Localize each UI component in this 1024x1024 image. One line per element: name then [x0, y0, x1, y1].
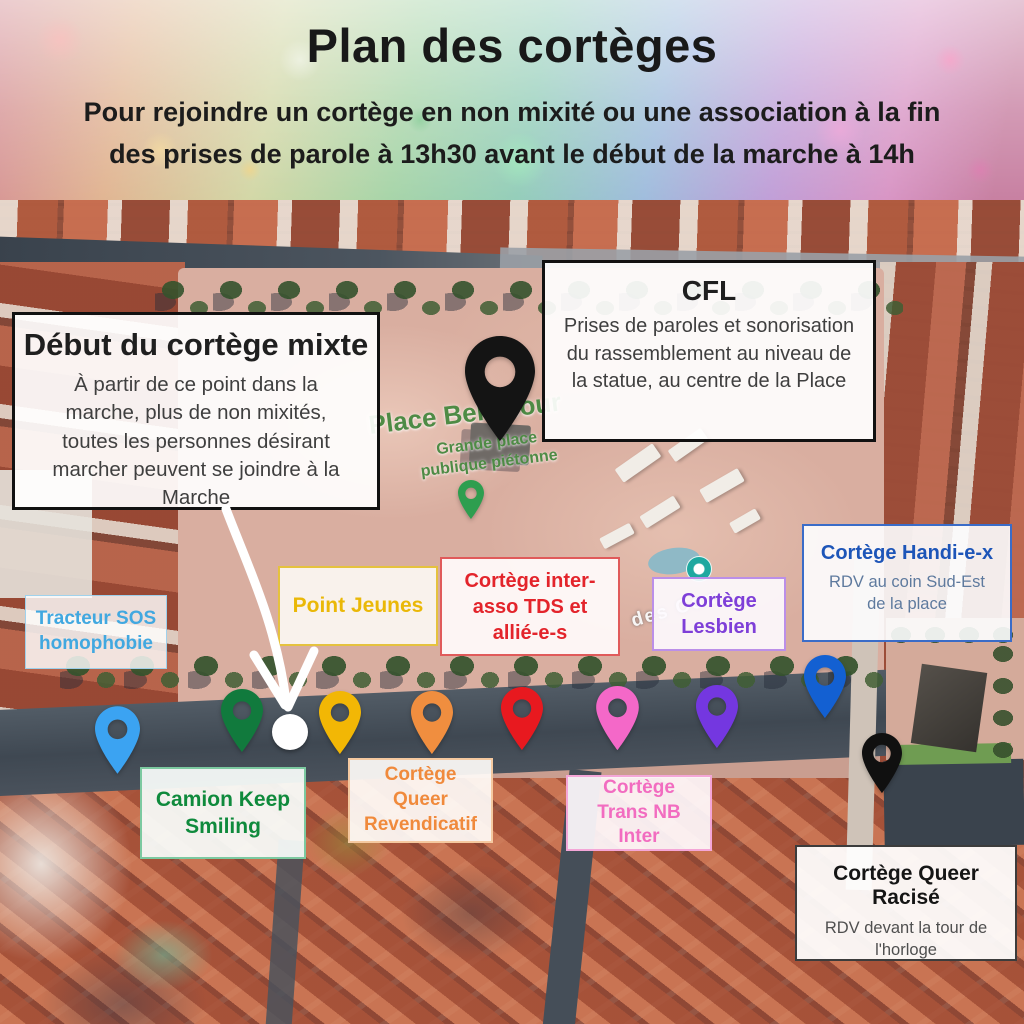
- callout-debut-title: Début du cortège mixte: [23, 327, 369, 363]
- header-banner: Plan des cortèges Pour rejoindre un cort…: [0, 0, 1024, 200]
- label-cortege-lesbien: Cortège Lesbien: [652, 577, 786, 651]
- cortege-trans-nb-inter-pin: [596, 686, 639, 750]
- callout-cfl-title: CFL: [553, 275, 865, 307]
- cortege-queer-revendicatif-pin: [411, 691, 453, 754]
- callout-debut-body: À partir de ce point dans la marche, plu…: [35, 371, 357, 512]
- label-camion-keep-smiling: Camion Keep Smiling: [140, 767, 306, 859]
- callout-cfl: CFL Prises de paroles et sonorisation du…: [542, 260, 876, 442]
- callout-handi-title: Cortège Handi-e-x: [810, 542, 1004, 565]
- tracteur-sos-homophobie-pin: [95, 706, 140, 774]
- camion-keep-smiling-pin: [221, 689, 263, 752]
- subtitle-line-1: Pour rejoindre un cortège en non mixité …: [84, 97, 941, 127]
- label-tracteur-sos-homophobie: Tracteur SOS homophobie: [25, 595, 167, 669]
- park-marker-icon: [458, 480, 484, 519]
- point-jeunes-pin: [319, 691, 361, 754]
- callout-cortege-handi: Cortège Handi-e-x RDV au coin Sud-Est de…: [802, 524, 1012, 642]
- label-cortege-queer-revendicatif: Cortège Queer Revendicatif: [348, 758, 493, 843]
- callout-cfl-body: Prises de paroles et sonorisation du ras…: [559, 313, 859, 396]
- label-cortege-inter-asso: Cortège inter-asso TDS et allié-e-s: [440, 557, 620, 656]
- cortege-inter-asso-pin: [501, 687, 543, 750]
- page-subtitle: Pour rejoindre un cortège en non mixité …: [0, 92, 1024, 176]
- cortege-handi-pin: [804, 655, 846, 718]
- map-pavilion-roof: [911, 664, 987, 752]
- page-title: Plan des cortèges: [0, 18, 1024, 73]
- cortege-queer-racise-pin: [862, 733, 902, 793]
- map-parking-right: [883, 759, 1024, 847]
- map-trees-right-edge: [988, 640, 1020, 766]
- subtitle-line-2: des prises de parole à 13h30 avant le dé…: [109, 139, 915, 169]
- label-cortege-trans-nb-inter: Cortège Trans NB Inter: [566, 775, 712, 851]
- callout-racise-body: RDV devant la tour de l'horloge: [823, 917, 989, 962]
- callout-racise-title: Cortège Queer Racisé: [803, 862, 1009, 910]
- cortege-lesbien-pin: [696, 685, 738, 748]
- debut-cortege-mixte-point: [272, 714, 308, 750]
- poster: Plan des cortèges Pour rejoindre un cort…: [0, 0, 1024, 1024]
- cfl-stage-pin: [465, 336, 535, 441]
- callout-cortege-queer-racise: Cortège Queer Racisé RDV devant la tour …: [795, 845, 1017, 961]
- callout-handi-body: RDV au coin Sud-Est de la place: [822, 571, 992, 616]
- callout-debut-cortege-mixte: Début du cortège mixte À partir de ce po…: [12, 312, 380, 510]
